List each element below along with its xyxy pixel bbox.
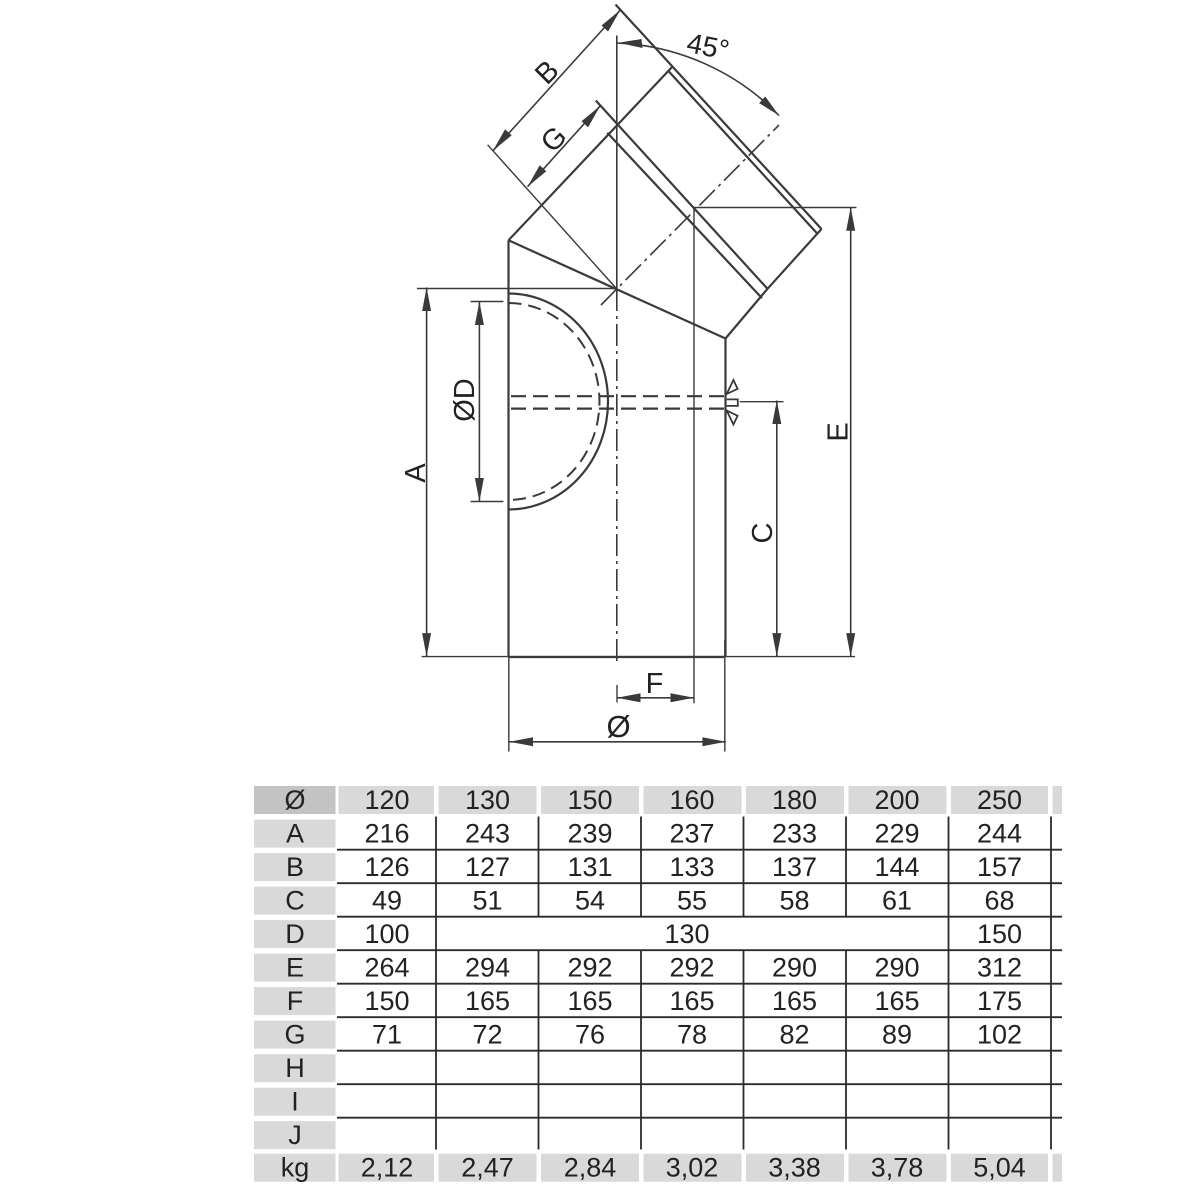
svg-text:312: 312 xyxy=(977,953,1022,983)
svg-text:2,84: 2,84 xyxy=(564,1153,617,1183)
svg-text:C: C xyxy=(747,523,779,544)
svg-text:100: 100 xyxy=(364,919,409,949)
svg-text:82: 82 xyxy=(779,1020,809,1050)
svg-text:55: 55 xyxy=(677,886,707,916)
svg-text:F: F xyxy=(287,986,304,1016)
svg-text:165: 165 xyxy=(669,986,714,1016)
svg-text:233: 233 xyxy=(772,819,817,849)
svg-text:I: I xyxy=(291,1087,299,1117)
svg-text:200: 200 xyxy=(874,785,919,815)
svg-text:2,12: 2,12 xyxy=(361,1153,414,1183)
svg-text:58: 58 xyxy=(779,886,809,916)
svg-text:165: 165 xyxy=(465,986,510,1016)
svg-text:180: 180 xyxy=(772,785,817,815)
svg-text:264: 264 xyxy=(364,953,409,983)
svg-text:216: 216 xyxy=(364,819,409,849)
svg-text:Ø: Ø xyxy=(607,709,631,744)
svg-text:165: 165 xyxy=(772,986,817,1016)
svg-text:294: 294 xyxy=(465,953,510,983)
svg-text:B: B xyxy=(286,852,304,882)
svg-text:157: 157 xyxy=(977,852,1022,882)
svg-text:E: E xyxy=(286,953,304,983)
svg-text:150: 150 xyxy=(364,986,409,1016)
svg-text:51: 51 xyxy=(472,886,502,916)
svg-text:160: 160 xyxy=(669,785,714,815)
svg-text:133: 133 xyxy=(669,852,714,882)
svg-text:F: F xyxy=(646,668,664,700)
svg-text:61: 61 xyxy=(882,886,912,916)
svg-text:237: 237 xyxy=(669,819,714,849)
svg-text:229: 229 xyxy=(874,819,919,849)
svg-text:120: 120 xyxy=(364,785,409,815)
svg-text:239: 239 xyxy=(567,819,612,849)
svg-text:ØD: ØD xyxy=(449,378,481,422)
svg-text:144: 144 xyxy=(874,852,919,882)
svg-text:243: 243 xyxy=(465,819,510,849)
svg-text:C: C xyxy=(285,886,305,916)
svg-text:290: 290 xyxy=(874,953,919,983)
svg-text:150: 150 xyxy=(567,785,612,815)
svg-text:G: G xyxy=(284,1020,305,1050)
svg-text:54: 54 xyxy=(575,886,605,916)
svg-text:250: 250 xyxy=(977,785,1022,815)
svg-text:kg: kg xyxy=(281,1153,310,1183)
svg-text:137: 137 xyxy=(772,852,817,882)
svg-text:165: 165 xyxy=(874,986,919,1016)
svg-text:3,38: 3,38 xyxy=(768,1153,821,1183)
svg-text:89: 89 xyxy=(882,1020,912,1050)
svg-text:292: 292 xyxy=(567,953,612,983)
svg-text:5,04: 5,04 xyxy=(973,1153,1026,1183)
svg-text:71: 71 xyxy=(372,1020,402,1050)
svg-text:3,02: 3,02 xyxy=(666,1153,719,1183)
svg-text:165: 165 xyxy=(567,986,612,1016)
svg-text:130: 130 xyxy=(465,785,510,815)
svg-text:78: 78 xyxy=(677,1020,707,1050)
svg-text:76: 76 xyxy=(575,1020,605,1050)
svg-text:130: 130 xyxy=(664,919,709,949)
svg-text:J: J xyxy=(288,1120,302,1150)
svg-text:126: 126 xyxy=(364,852,409,882)
svg-text:2,47: 2,47 xyxy=(461,1153,514,1183)
svg-text:49: 49 xyxy=(372,886,402,916)
svg-text:D: D xyxy=(285,919,305,949)
svg-text:131: 131 xyxy=(567,852,612,882)
svg-text:68: 68 xyxy=(984,886,1014,916)
svg-text:A: A xyxy=(286,819,304,849)
svg-text:290: 290 xyxy=(772,953,817,983)
svg-text:A: A xyxy=(400,463,432,483)
svg-text:E: E xyxy=(823,422,855,441)
svg-text:Ø: Ø xyxy=(284,785,305,815)
svg-text:3,78: 3,78 xyxy=(871,1153,924,1183)
svg-text:244: 244 xyxy=(977,819,1022,849)
svg-text:127: 127 xyxy=(465,852,510,882)
svg-text:H: H xyxy=(285,1053,305,1083)
svg-text:72: 72 xyxy=(472,1020,502,1050)
svg-text:292: 292 xyxy=(669,953,714,983)
svg-text:102: 102 xyxy=(977,1020,1022,1050)
svg-text:150: 150 xyxy=(977,919,1022,949)
svg-text:175: 175 xyxy=(977,986,1022,1016)
